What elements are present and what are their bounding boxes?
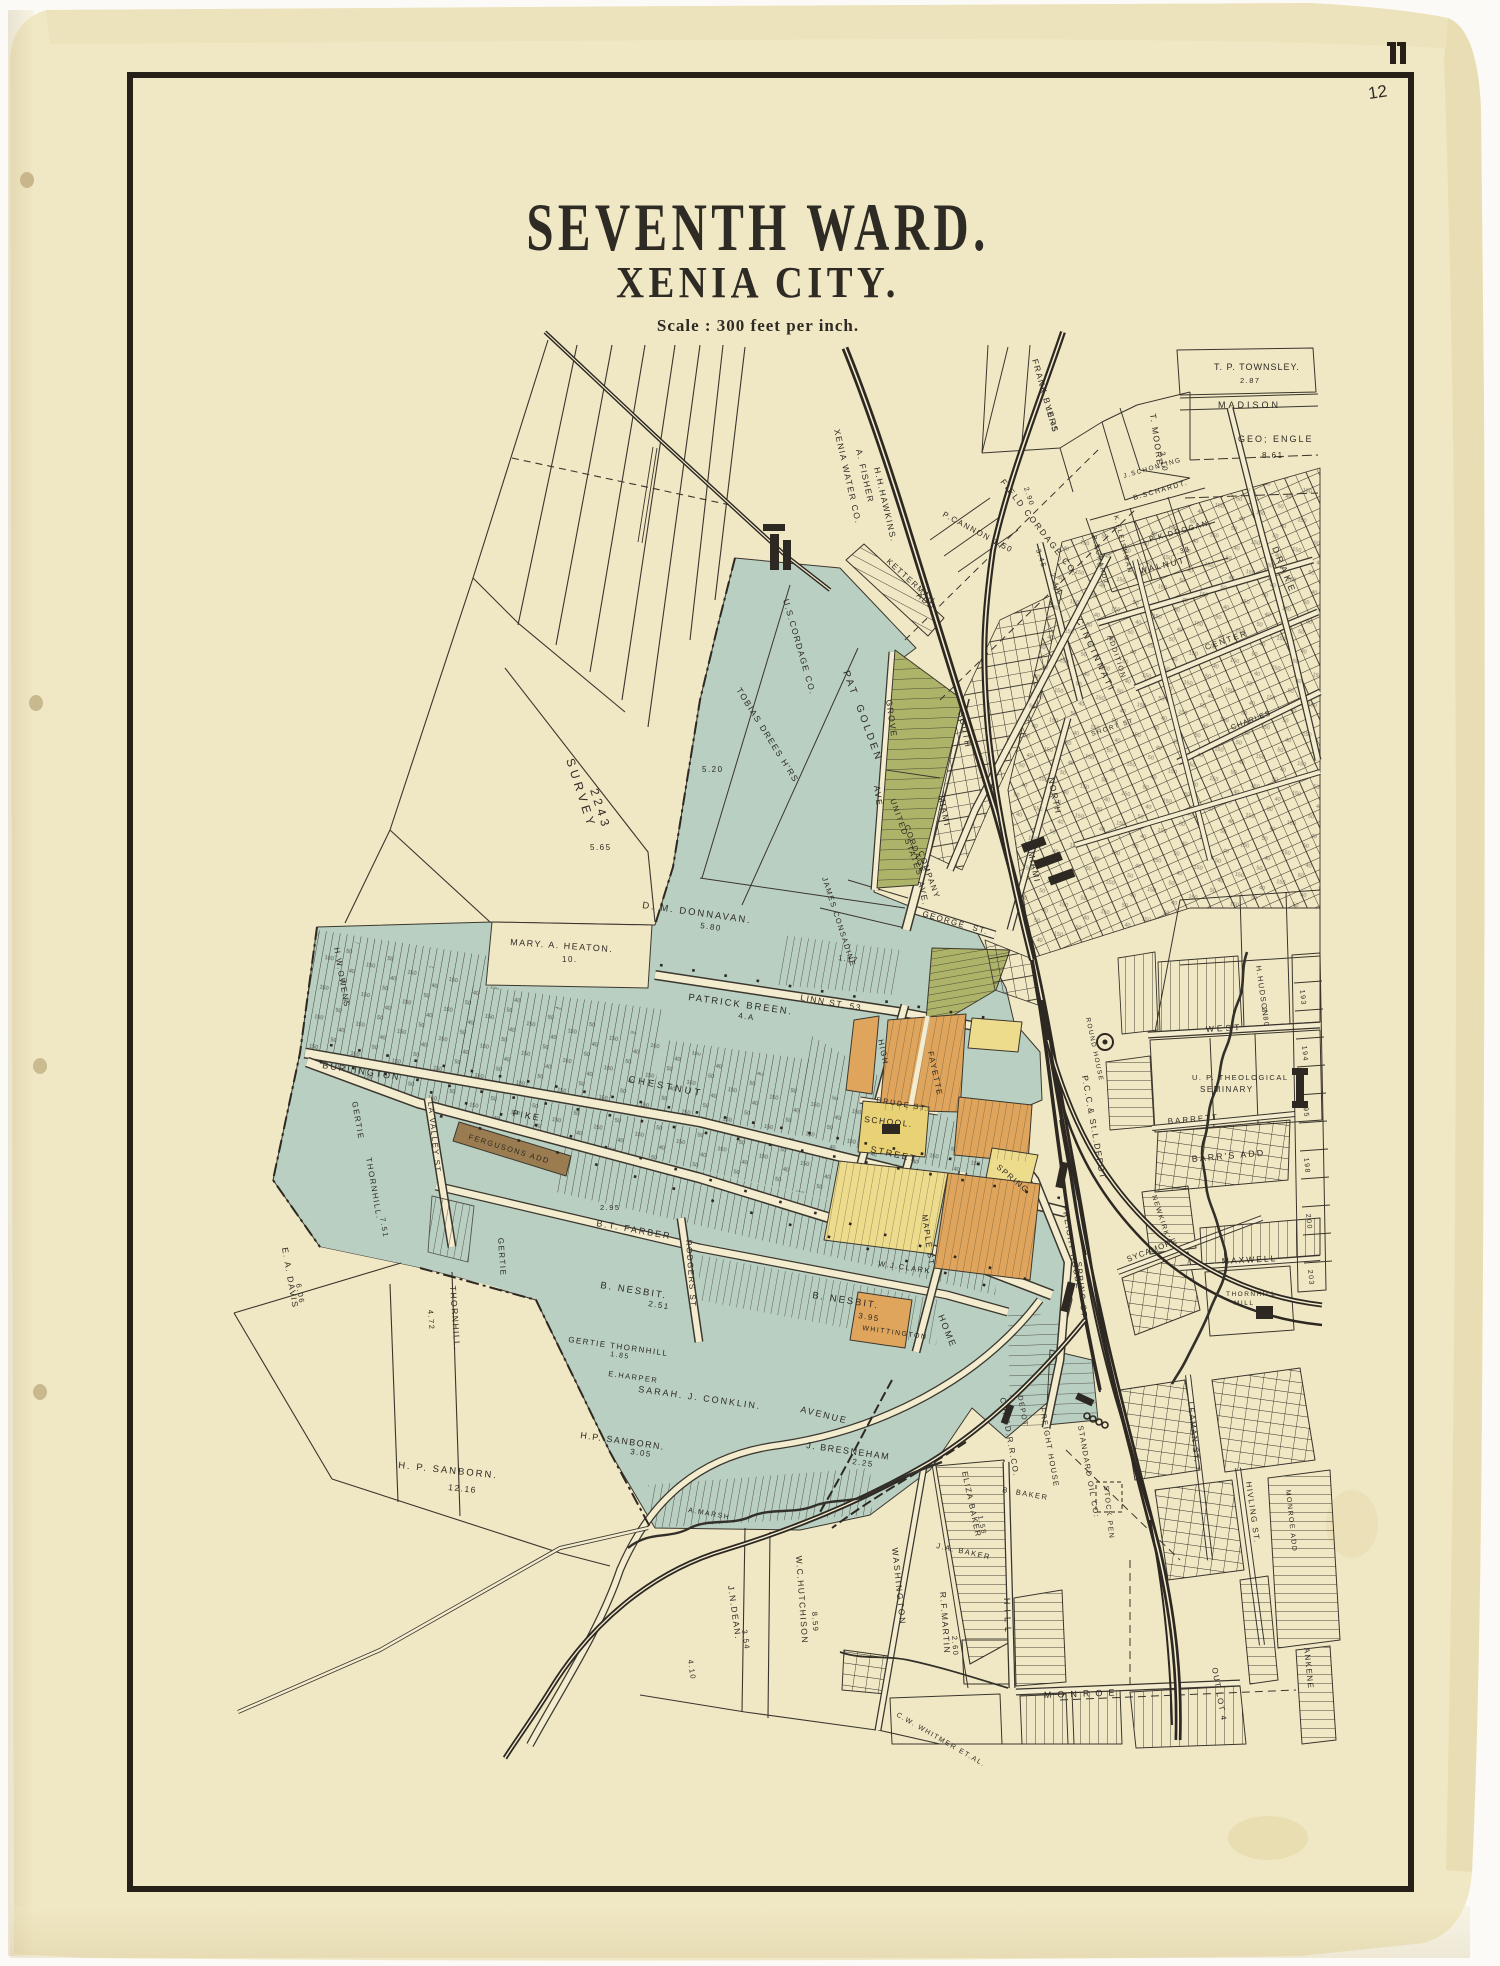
svg-text:2.95: 2.95 bbox=[600, 1203, 621, 1212]
svg-text:THORNHILL: THORNHILL bbox=[1226, 1291, 1276, 1298]
svg-text:4.72: 4.72 bbox=[426, 1310, 436, 1331]
svg-text:T. P. TOWNSLEY.: T. P. TOWNSLEY. bbox=[1214, 362, 1300, 372]
svg-text:8.59: 8.59 bbox=[810, 1612, 820, 1633]
svg-text:Scale : 300 feet per inch.: Scale : 300 feet per inch. bbox=[657, 316, 859, 335]
svg-text:2.87: 2.87 bbox=[1240, 376, 1261, 385]
svg-text:5.65: 5.65 bbox=[590, 843, 612, 852]
svg-text:SEMINARY: SEMINARY bbox=[1200, 1085, 1254, 1094]
svg-text:12: 12 bbox=[1367, 82, 1388, 103]
svg-text:HILL: HILL bbox=[1002, 1598, 1013, 1637]
svg-text:U. P. THEOLOGICAL: U. P. THEOLOGICAL bbox=[1192, 1073, 1289, 1082]
svg-text:MADISON: MADISON bbox=[1218, 400, 1281, 410]
svg-text:2.60: 2.60 bbox=[950, 1636, 960, 1657]
svg-text:GEO; ENGLE: GEO; ENGLE bbox=[1238, 434, 1314, 444]
svg-text:5.20: 5.20 bbox=[702, 765, 724, 774]
svg-text:10.: 10. bbox=[562, 955, 578, 964]
svg-text:8.61: 8.61 bbox=[1262, 451, 1284, 460]
svg-text:WEST: WEST bbox=[1206, 1022, 1243, 1034]
svg-text:XENIA CITY.: XENIA CITY. bbox=[616, 258, 900, 307]
svg-text:SEVENTH WARD.: SEVENTH WARD. bbox=[526, 189, 989, 265]
svg-text:MILL: MILL bbox=[1234, 1300, 1254, 1307]
